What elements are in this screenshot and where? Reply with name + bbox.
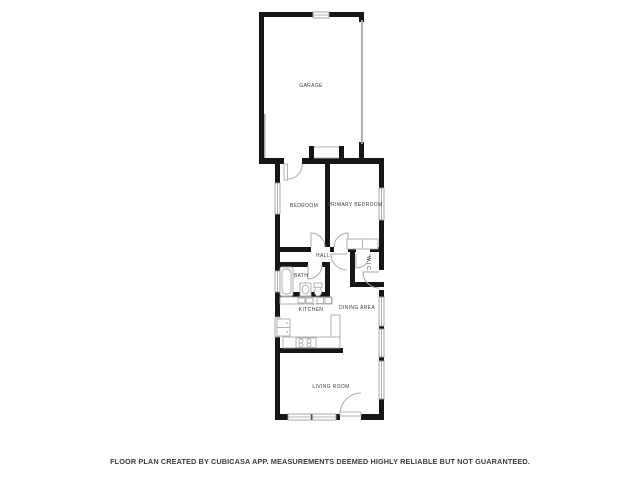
stove [296, 338, 316, 348]
room-label-hall: HALL [316, 253, 330, 259]
window [288, 414, 311, 420]
garage-entry-door [284, 164, 302, 180]
window [275, 271, 280, 292]
room-label-wic: W.I.C. [365, 256, 371, 272]
room-label-primary-bedroom: PRIMARY BEDROOM [327, 202, 382, 208]
room-label-garage: GARAGE [299, 83, 323, 89]
footer-disclaimer: FLOOR PLAN CREATED BY CUBICASA APP. MEAS… [110, 457, 530, 466]
room-label-kitchen: KITCHEN [299, 307, 323, 313]
bathroom-sink [300, 283, 311, 296]
room-label-bedroom: BEDROOM [290, 203, 318, 209]
floor-plan-canvas: GARAGE BEDROOM PRIMARY BEDROOM HALL W.I.… [0, 0, 640, 480]
window [313, 414, 337, 420]
front-door [340, 393, 361, 416]
window [379, 361, 384, 399]
window [379, 329, 384, 357]
room-label-living-room: LIVING ROOM [312, 384, 349, 390]
refrigerator [277, 319, 290, 336]
bathtub [280, 267, 293, 296]
primary-closet-dresser [347, 239, 378, 249]
kitchen-counter-top [280, 297, 332, 304]
window [313, 12, 329, 18]
room-label-dining-area: DINING AREA [339, 305, 375, 311]
hall-dining-door [331, 254, 347, 270]
window [275, 183, 280, 214]
exterior-walls [259, 12, 384, 420]
toilet [314, 283, 322, 296]
primary-bedroom-door [334, 233, 348, 247]
bath-door [308, 265, 322, 279]
garage-step-landing [309, 146, 344, 159]
bedroom-door [311, 233, 325, 247]
window [379, 297, 384, 326]
room-label-bath: BATH [294, 273, 308, 279]
floor-plan: GARAGE BEDROOM PRIMARY BEDROOM HALL W.I.… [0, 0, 640, 480]
